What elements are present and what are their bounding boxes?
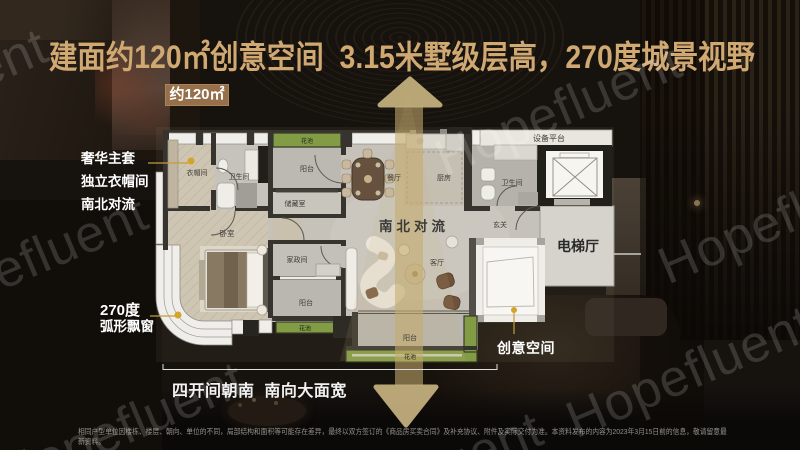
svg-text:电梯厅: 电梯厅 [557, 238, 599, 254]
svg-text:花池: 花池 [299, 325, 311, 333]
svg-text:餐厅: 餐厅 [387, 173, 401, 182]
svg-text:卧室: 卧室 [220, 228, 235, 238]
svg-text:阳台: 阳台 [299, 298, 313, 307]
svg-text:储藏室: 储藏室 [285, 199, 306, 208]
svg-text:家政间: 家政间 [287, 255, 308, 264]
svg-text:阳台: 阳台 [300, 164, 314, 173]
svg-text:客厅: 客厅 [430, 258, 444, 267]
svg-text:卫生间: 卫生间 [229, 172, 250, 181]
svg-text:卫生间: 卫生间 [502, 178, 523, 187]
svg-text:花池: 花池 [301, 137, 313, 145]
svg-text:衣帽间: 衣帽间 [187, 168, 208, 177]
svg-text:花池: 花池 [404, 353, 416, 361]
svg-text:南北对流: 南北对流 [379, 218, 449, 234]
svg-text:阳台: 阳台 [403, 333, 417, 342]
svg-text:玄关: 玄关 [493, 220, 507, 229]
